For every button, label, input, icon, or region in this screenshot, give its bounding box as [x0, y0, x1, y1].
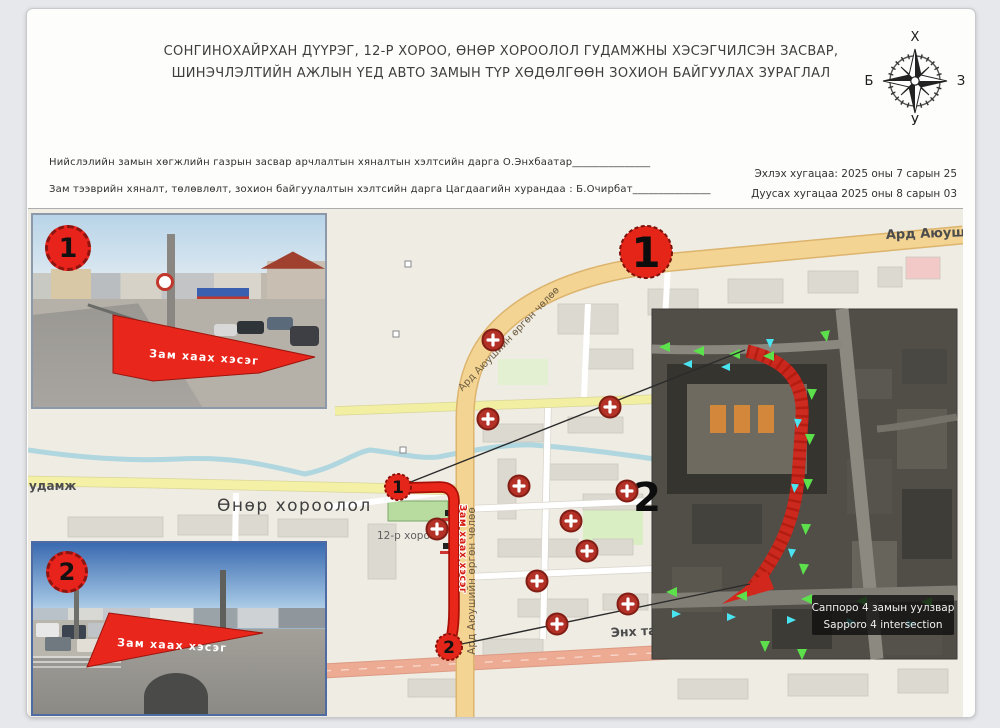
end-date: Дуусах хугацаа 2025 оны 8 сарын 03: [751, 185, 957, 205]
page-background: { "document": { "title": "СОНГИНОХАЙРХАН…: [0, 0, 1000, 728]
page-title: СОНГИНОХАЙРХАН ДҮҮРЭГ, 12-Р ХОРОО, ӨНӨР …: [139, 41, 863, 85]
map-location-badge-1: 1: [620, 226, 672, 278]
label-gudamj: удамж: [29, 479, 76, 493]
label-enkh-taivan: Энх та: [610, 623, 657, 640]
site-photo-1: Зам хаах хэсэг 1: [31, 213, 327, 409]
compass-south-label: У: [911, 114, 919, 127]
map-location-badge-2: 2: [633, 475, 661, 521]
compass-west-label: Б: [865, 74, 874, 89]
schedule-dates: Эхлэх хугацаа: 2025 оны 7 сарын 25 Дууса…: [751, 165, 957, 205]
caption-mongolian: Саппоро 4 замын уулзвар: [812, 602, 955, 614]
satellite-caption: Саппоро 4 замын уулзвар Sapporo 4 inters…: [812, 595, 955, 635]
route-point-1: 1: [392, 478, 404, 498]
photo2-number-badge: 2: [46, 551, 88, 593]
start-date: Эхлэх хугацаа: 2025 оны 7 сарын 25: [751, 165, 957, 185]
site-photo-2: Зам хаах хэсэг 2: [31, 541, 327, 716]
signature-line-1: Нийслэлийн замын хөгжлийн газрын засвар …: [49, 157, 650, 168]
route-closure-label: Зам хаах хэсэг: [457, 504, 468, 593]
compass-rose-icon: Х У З Б: [863, 23, 967, 127]
signature-line-2: Зам тээврийн хяналт, төлөвлөлт, зохион б…: [49, 184, 711, 195]
svg-text:1: 1: [631, 228, 660, 277]
caption-english: Sapporo 4 intersection: [823, 619, 942, 631]
document-page: СОНГИНОХАЙРХАН ДҮҮРЭГ, 12-Р ХОРОО, ӨНӨР …: [26, 8, 976, 718]
label-district: Өнөр хороолол: [217, 496, 372, 516]
photo1-number-badge: 1: [45, 225, 91, 271]
compass-east-label: З: [957, 74, 965, 89]
label-ard-ayush: Ард Аюуши: [886, 225, 963, 243]
compass-north-label: Х: [911, 30, 920, 45]
route-point-2: 2: [443, 638, 455, 658]
satellite-inset: Саппоро 4 замын уулзвар Sapporo 4 inters…: [652, 309, 957, 660]
